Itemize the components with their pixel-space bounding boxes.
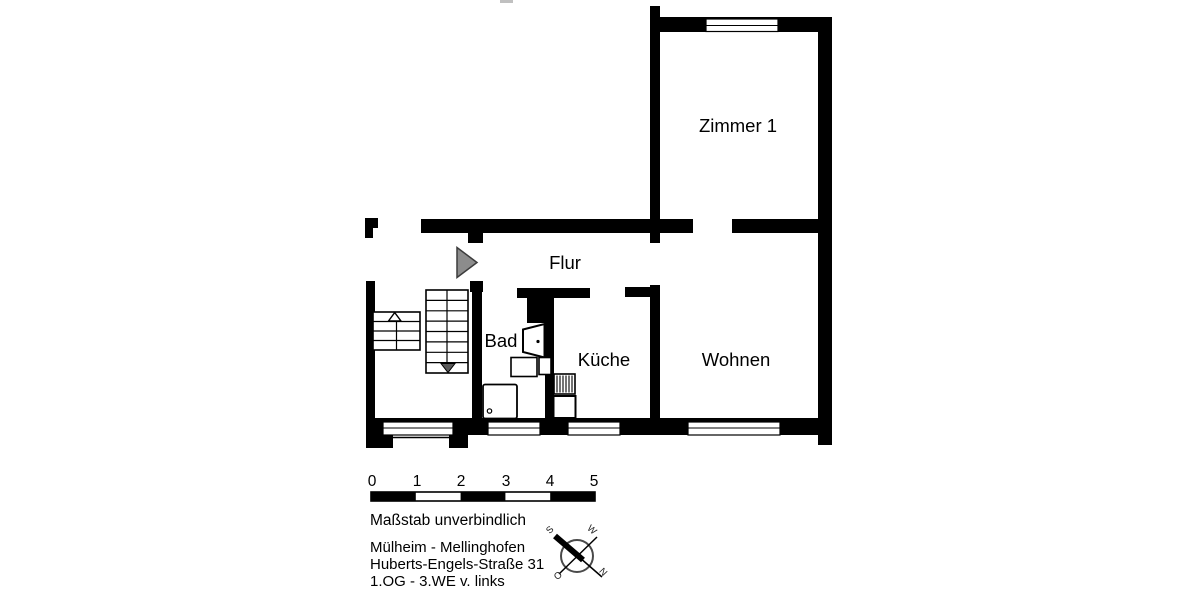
scale-tick-5: 5 <box>590 473 599 490</box>
washbasin-cabinet <box>539 358 551 375</box>
scale-bar-segment-black-3 <box>550 492 595 501</box>
room-label-kueche: Küche <box>578 349 630 370</box>
compass-label-east: O <box>552 569 565 582</box>
scale-bar: 0 1 2 3 4 5 Maßstab unverbindlich <box>368 473 599 529</box>
wall-kueche-top-stub <box>625 287 652 297</box>
staircase <box>373 290 468 373</box>
wall-bad-top <box>517 288 590 298</box>
compass-label-west: W <box>585 523 599 537</box>
wall-kueche-wohnen <box>650 285 660 418</box>
room-label-flur: Flur <box>549 252 581 273</box>
window-bad <box>488 422 540 435</box>
scale-tick-2: 2 <box>457 473 466 490</box>
wall-landing-stub-a <box>365 218 378 228</box>
scale-bar-segment-black-2 <box>461 492 506 501</box>
radiator <box>554 374 575 394</box>
wall-zimmer1-bottom-right <box>732 219 823 233</box>
room-label-zimmer1: Zimmer 1 <box>699 115 777 136</box>
duct-shaft-block <box>527 298 546 323</box>
wall-stairwell-right <box>472 281 482 418</box>
wall-zimmer1-left <box>650 6 660 243</box>
scale-bar-segment-black-1 <box>371 492 416 501</box>
floor-plan-drawing: Zimmer 1 Flur Bad Küche Wohnen 0 1 2 3 4… <box>0 0 1200 600</box>
entrance-arrow-icon <box>457 248 477 278</box>
room-label-bad: Bad <box>485 330 518 351</box>
compass-rose: S W O N <box>544 523 609 583</box>
scale-caption: Maßstab unverbindlich <box>370 512 526 529</box>
scale-tick-4: 4 <box>546 473 555 490</box>
wall-entrance-door-stub <box>468 233 483 243</box>
stair-flight-left <box>373 312 420 350</box>
address-block: Mülheim - Mellinghofen Huberts-Engels-St… <box>370 539 544 590</box>
address-district: Mülheim - Mellinghofen <box>370 539 525 556</box>
scale-tick-0: 0 <box>368 473 377 490</box>
address-unit: 1.OG - 3.WE v. links <box>370 573 505 590</box>
kueche-fixtures <box>554 374 576 418</box>
wall-zimmer1-bottom-left <box>660 219 693 233</box>
door-leaf-icon <box>523 324 545 358</box>
compass-label-north: N <box>596 566 609 579</box>
stove <box>554 396 576 418</box>
window-stairwell <box>383 422 453 438</box>
address-street: Huberts-Engels-Straße 31 <box>370 556 544 573</box>
walls <box>365 6 832 448</box>
window-wohnen <box>688 422 780 435</box>
cropped-wall-artifact <box>500 0 513 3</box>
scale-tick-1: 1 <box>413 473 422 490</box>
compass-label-south: S <box>544 524 556 536</box>
floor-plan-page: Zimmer 1 Flur Bad Küche Wohnen 0 1 2 3 4… <box>0 0 1200 600</box>
window-kueche <box>568 422 620 435</box>
wall-landing-stub-b <box>365 228 373 238</box>
stair-flight-right <box>426 290 468 373</box>
wall-flur-top <box>421 219 660 233</box>
room-label-wohnen: Wohnen <box>702 349 771 370</box>
scale-tick-3: 3 <box>502 473 511 490</box>
door-handle-dot <box>536 340 539 343</box>
window-zimmer1 <box>706 19 778 32</box>
washbasin <box>511 358 537 377</box>
